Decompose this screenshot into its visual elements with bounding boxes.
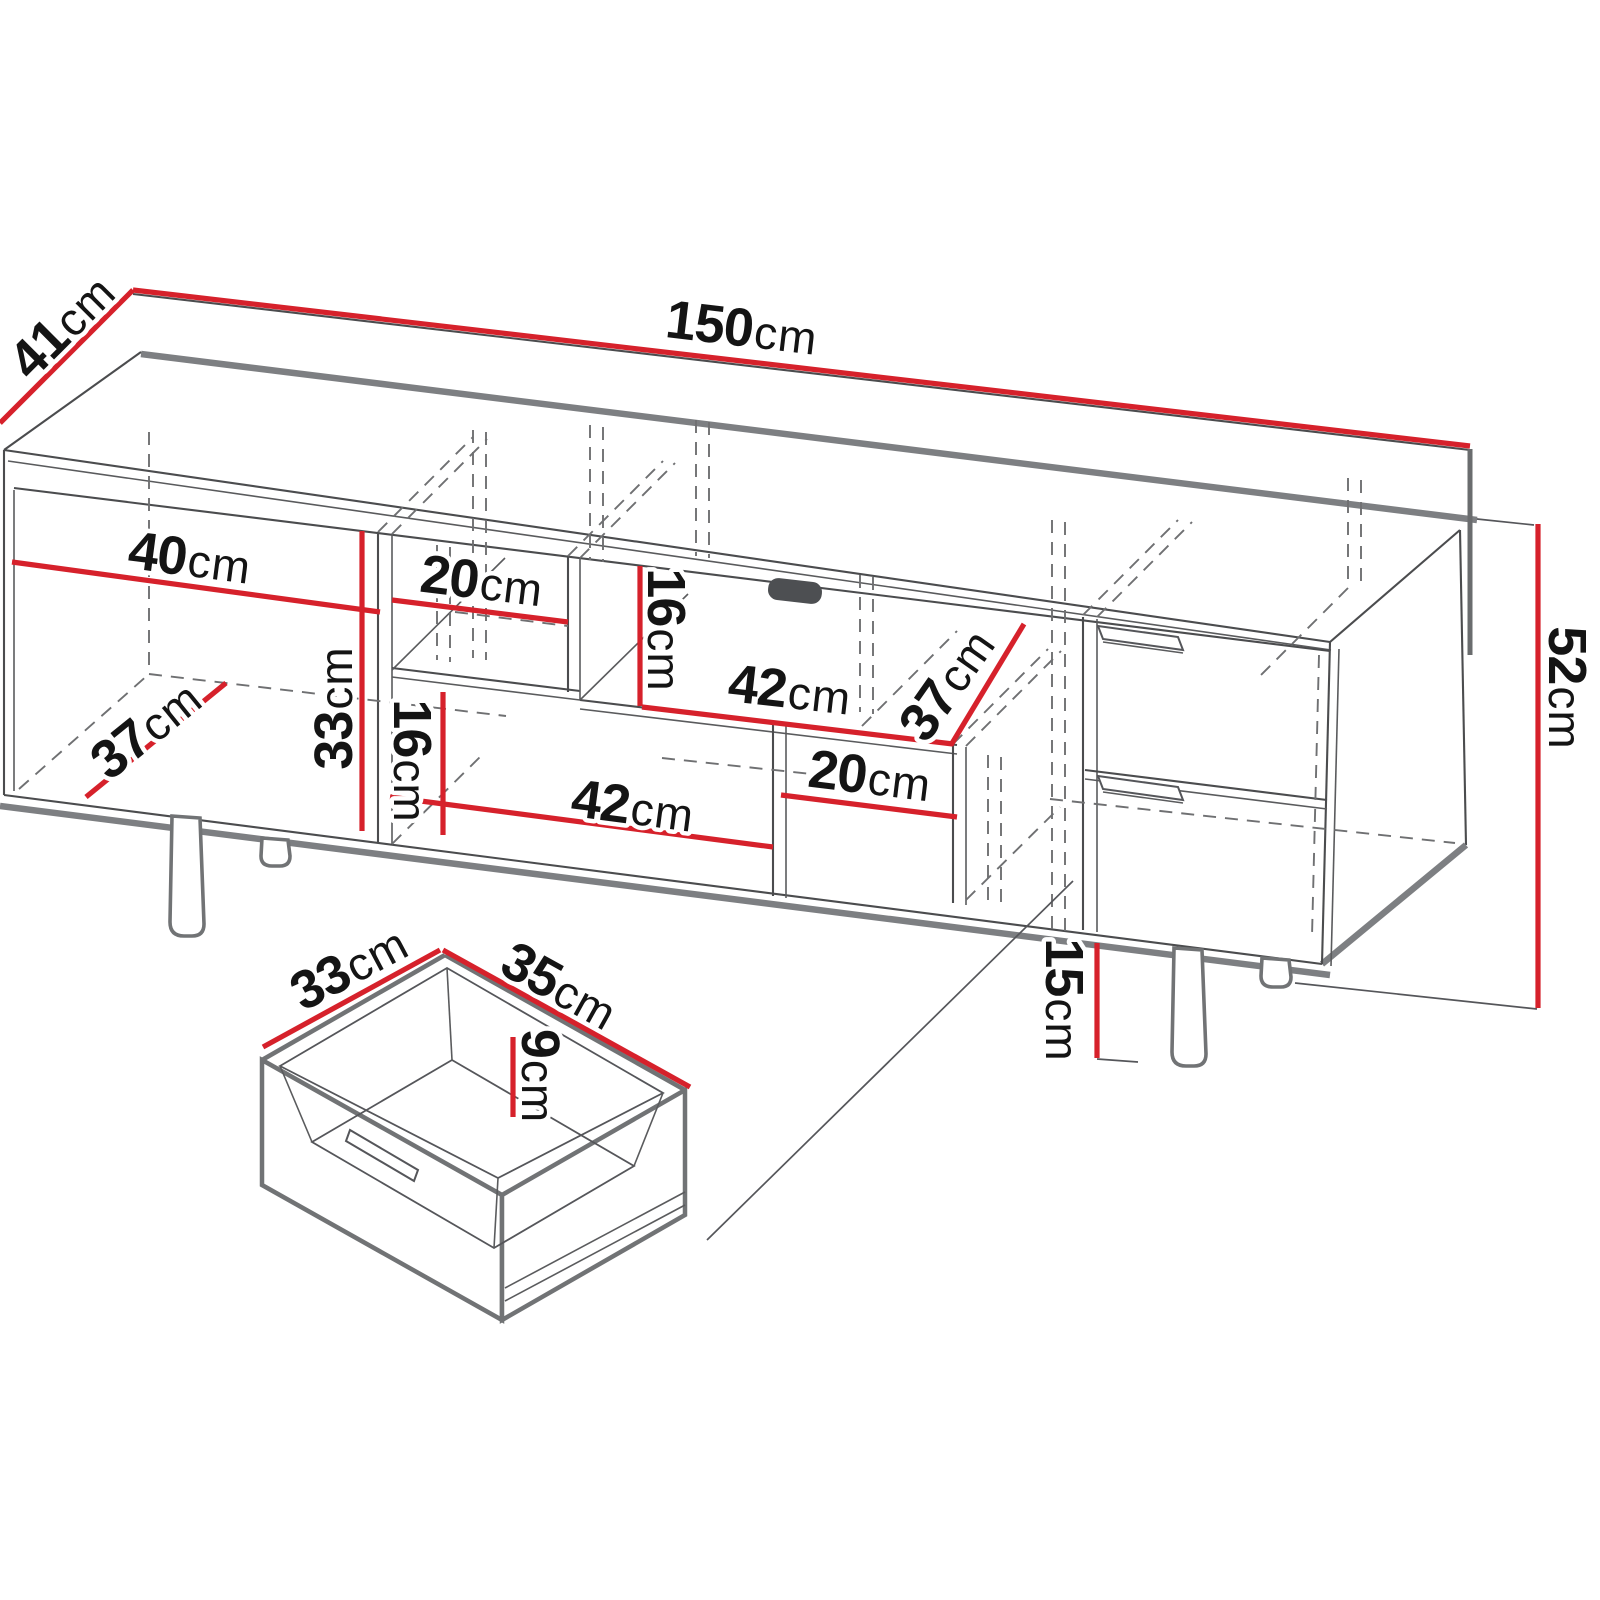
legs (170, 816, 1291, 1066)
label-left-width-40cm: 40cm (125, 520, 255, 596)
label-left-depth-37cm: 37cm (79, 667, 213, 791)
hidden-diagonal-1a (378, 437, 473, 532)
drawer-right-face (502, 1090, 685, 1320)
label-drawer-depth-33cm: 33cm (280, 912, 417, 1023)
right-face-back-edge (1460, 530, 1466, 845)
label-bottom-height-16cm: 16cm (382, 699, 442, 822)
dimension-labels: 150cm 41cm 52cm 40cm 33cm 37cm 20cm 16cm… (0, 261, 1597, 1123)
drawer-inner-corner-back (447, 968, 452, 1060)
dim-ext-bottom-right (1295, 983, 1537, 1009)
label-leg-15cm: 15cm (1034, 938, 1094, 1061)
hidden-bottom-back-right (1050, 799, 1455, 843)
label-height-52cm: 52cm (1537, 626, 1597, 749)
back-right-leg (1261, 958, 1291, 987)
label-bottom-open-42cm: 42cm (568, 768, 698, 844)
front-right-leg (1172, 948, 1206, 1066)
hidden-diagonal-6 (966, 807, 1060, 900)
front-right-edge-outer (1322, 642, 1330, 964)
hidden-bottom-back-left (662, 758, 830, 776)
dim-ext-leg-bottom (1097, 1059, 1138, 1062)
dim-ext-top-right (1477, 519, 1534, 525)
back-left-leg (261, 838, 290, 866)
label-top-height-16cm: 16cm (636, 568, 696, 691)
hidden-diagonal-2a (568, 461, 663, 556)
hidden-diagonal-4b (1097, 522, 1192, 617)
hidden-diagonal-8 (1260, 588, 1348, 676)
top-shelf-front-edge (392, 668, 580, 691)
diagram-canvas: 150cm 41cm 52cm 40cm 33cm 37cm 20cm 16cm… (0, 0, 1600, 1600)
furniture-dimension-diagram: 150cm 41cm 52cm 40cm 33cm 37cm 20cm 16cm… (0, 0, 1600, 1600)
front-right-edge-inner (1331, 649, 1339, 966)
label-top-open-42cm: 42cm (725, 653, 854, 727)
back-panel-bottom-edge (141, 354, 1477, 520)
right-face-bottom-edge (1322, 845, 1466, 964)
front-left-leg (170, 816, 204, 936)
label-drawer-width-35cm: 35cm (491, 930, 628, 1042)
hidden-vertical-8 (1312, 655, 1319, 936)
hidden-diagonal-4a (1083, 520, 1178, 615)
label-depth-41cm: 41cm (0, 261, 127, 391)
cabinet-outline (0, 294, 1477, 975)
right-face-top-edge (1330, 530, 1460, 642)
drawer-front-face (262, 1060, 502, 1320)
hidden-diagonal-2b (580, 463, 675, 558)
drawer-leader-line (707, 881, 1073, 1240)
label-left-height-33cm: 33cm (304, 646, 364, 769)
label-drawer-height-9cm: 9cm (510, 1029, 570, 1123)
cable-handle-cutout (767, 577, 823, 605)
